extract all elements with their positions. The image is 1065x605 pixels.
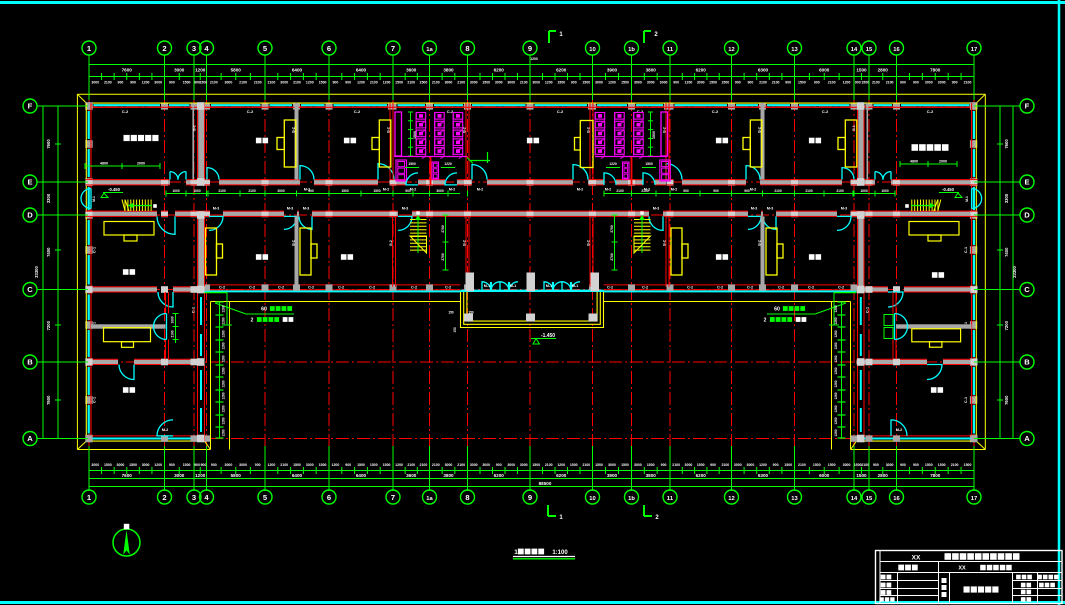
svg-text:5800: 5800 — [231, 473, 242, 478]
svg-text:M-1: M-1 — [965, 196, 969, 202]
svg-text:3: 3 — [192, 493, 196, 502]
svg-text:33300: 33300 — [34, 266, 39, 278]
svg-text:1260: 1260 — [222, 367, 226, 374]
svg-text:C-2: C-2 — [308, 286, 314, 290]
svg-text:900: 900 — [308, 189, 314, 193]
svg-text:M-1: M-1 — [546, 284, 553, 288]
svg-text:3800: 3800 — [443, 473, 454, 478]
svg-text:2100: 2100 — [774, 189, 782, 193]
svg-text:2100: 2100 — [420, 463, 428, 467]
svg-text:1500: 1500 — [183, 463, 191, 467]
svg-text:B-1: B-1 — [852, 125, 856, 131]
svg-text:2100: 2100 — [407, 463, 415, 467]
svg-text:3000: 3000 — [239, 463, 247, 467]
svg-text:D: D — [27, 211, 33, 220]
svg-text:C-1: C-1 — [93, 247, 97, 253]
svg-text:1260: 1260 — [222, 342, 226, 349]
svg-text:88500: 88500 — [539, 481, 552, 486]
svg-text:3000: 3000 — [685, 463, 693, 467]
svg-text:M-3: M-3 — [287, 207, 294, 211]
svg-text:1260: 1260 — [222, 417, 226, 424]
svg-text:3000: 3000 — [660, 81, 668, 85]
svg-text:1260: 1260 — [222, 355, 226, 362]
svg-text:1200: 1200 — [142, 81, 150, 85]
svg-text:M-2: M-2 — [896, 428, 903, 432]
svg-text:14: 14 — [851, 47, 858, 53]
svg-text:2100: 2100 — [457, 81, 465, 85]
svg-text:1500: 1500 — [413, 131, 417, 139]
svg-text:B-2: B-2 — [463, 240, 467, 246]
svg-text:2100: 2100 — [772, 81, 780, 85]
svg-text:1000: 1000 — [171, 316, 175, 323]
svg-text:900: 900 — [735, 81, 741, 85]
svg-text:C-2: C-2 — [249, 286, 255, 290]
svg-text:1500: 1500 — [395, 81, 403, 85]
svg-text:9: 9 — [528, 493, 532, 502]
svg-text:2100: 2100 — [239, 81, 247, 85]
svg-text:A: A — [1024, 434, 1030, 443]
svg-text:12: 12 — [728, 496, 734, 502]
svg-text:3000: 3000 — [938, 81, 946, 85]
svg-text:3000: 3000 — [174, 68, 185, 73]
svg-text:1260: 1260 — [222, 317, 226, 324]
svg-text:1500: 1500 — [557, 81, 565, 85]
svg-text:1200: 1200 — [557, 463, 565, 467]
svg-text:C-2: C-2 — [411, 286, 417, 290]
svg-text:8: 8 — [465, 44, 469, 53]
svg-text:4800: 4800 — [910, 160, 918, 164]
svg-text:3000: 3000 — [634, 463, 642, 467]
svg-text:D: D — [1024, 211, 1030, 220]
svg-text:900: 900 — [345, 81, 351, 85]
svg-text:F: F — [28, 102, 33, 111]
svg-text:7800: 7800 — [930, 68, 941, 73]
svg-text:1200: 1200 — [383, 81, 391, 85]
svg-text:M-3: M-3 — [751, 207, 758, 211]
svg-text:900: 900 — [900, 463, 906, 467]
svg-text:6200: 6200 — [556, 68, 567, 73]
svg-text:1200: 1200 — [395, 463, 403, 467]
svg-text:900: 900 — [744, 189, 750, 193]
svg-text:1200: 1200 — [545, 81, 553, 85]
svg-text:1500: 1500 — [925, 463, 933, 467]
svg-text:900: 900 — [405, 189, 411, 193]
svg-text:900: 900 — [200, 463, 206, 467]
svg-text:7600: 7600 — [1004, 395, 1009, 405]
svg-text:1200: 1200 — [195, 68, 206, 73]
svg-text:33300: 33300 — [1012, 266, 1017, 278]
svg-text:5800: 5800 — [231, 68, 242, 73]
svg-text:B-2: B-2 — [463, 127, 467, 133]
svg-text:3000: 3000 — [470, 81, 478, 85]
svg-text:XX: XX — [912, 555, 921, 562]
svg-text:6400: 6400 — [356, 68, 367, 73]
svg-text:900: 900 — [900, 81, 906, 85]
svg-text:900: 900 — [673, 81, 679, 85]
svg-text:10: 10 — [589, 496, 595, 502]
svg-text:4800: 4800 — [100, 162, 108, 166]
svg-text:1260: 1260 — [834, 367, 838, 374]
svg-text:1260: 1260 — [834, 392, 838, 399]
svg-text:2100: 2100 — [280, 463, 288, 467]
svg-text:B-2: B-2 — [587, 240, 591, 246]
svg-text:1260: 1260 — [222, 405, 226, 412]
svg-text:M-3: M-3 — [767, 207, 774, 211]
svg-text:1260: 1260 — [834, 380, 838, 387]
svg-text:900: 900 — [773, 463, 779, 467]
svg-text:2100: 2100 — [520, 81, 528, 85]
svg-text:1260: 1260 — [834, 429, 838, 436]
svg-text:2: 2 — [654, 32, 658, 38]
svg-text:1500: 1500 — [621, 81, 629, 85]
svg-text:2: 2 — [162, 44, 166, 53]
svg-text:-0.450: -0.450 — [108, 187, 121, 192]
svg-text:4: 4 — [204, 44, 209, 53]
svg-text:2100: 2100 — [268, 81, 276, 85]
svg-text:900: 900 — [571, 81, 577, 85]
svg-text:900: 900 — [814, 81, 820, 85]
svg-text:M-2: M-2 — [449, 188, 456, 192]
svg-text:900: 900 — [118, 81, 124, 85]
svg-text:1220: 1220 — [444, 162, 452, 166]
svg-text:3000: 3000 — [747, 463, 755, 467]
svg-text:C-2: C-2 — [687, 286, 693, 290]
svg-text:C-2: C-2 — [927, 109, 934, 114]
svg-text:2000: 2000 — [939, 160, 947, 164]
svg-text:C-2: C-2 — [557, 109, 564, 114]
svg-text:2100: 2100 — [432, 463, 440, 467]
svg-text:900: 900 — [683, 189, 689, 193]
svg-text:3000: 3000 — [734, 463, 742, 467]
svg-text:1200: 1200 — [268, 463, 276, 467]
svg-text:7: 7 — [391, 44, 395, 53]
svg-text:M-1: M-1 — [572, 284, 579, 288]
svg-text:1a: 1a — [426, 47, 433, 53]
svg-text:12: 12 — [728, 47, 734, 53]
svg-text:C-2: C-2 — [219, 286, 225, 290]
svg-text:1500: 1500 — [652, 131, 656, 139]
svg-text:1:100: 1:100 — [552, 550, 568, 556]
svg-text:7200: 7200 — [46, 320, 51, 330]
svg-text:3000: 3000 — [886, 463, 894, 467]
svg-text:1260: 1260 — [222, 392, 226, 399]
svg-text:1500: 1500 — [319, 463, 327, 467]
svg-text:3000: 3000 — [445, 81, 453, 85]
svg-text:7800: 7800 — [930, 473, 941, 478]
svg-text:XX: XX — [958, 566, 966, 572]
svg-text:M-2: M-2 — [477, 188, 484, 192]
svg-text:2100: 2100 — [545, 463, 553, 467]
svg-text:1500: 1500 — [341, 189, 349, 193]
svg-text:1500: 1500 — [357, 463, 365, 467]
svg-text:3000: 3000 — [595, 81, 603, 85]
svg-text:C: C — [27, 285, 33, 294]
svg-text:E: E — [27, 178, 32, 187]
svg-text:3000: 3000 — [117, 463, 125, 467]
svg-text:2000: 2000 — [137, 162, 145, 166]
svg-text:1500: 1500 — [721, 81, 729, 85]
svg-text:7400: 7400 — [46, 247, 51, 257]
svg-text:1500: 1500 — [482, 81, 490, 85]
svg-text:2800: 2800 — [878, 473, 889, 478]
svg-text:2700: 2700 — [610, 225, 614, 233]
svg-text:1500: 1500 — [420, 81, 428, 85]
svg-text:2100: 2100 — [171, 330, 175, 337]
svg-text:900: 900 — [713, 189, 719, 193]
svg-text:1260: 1260 — [834, 417, 838, 424]
svg-text:C-1: C-1 — [964, 397, 968, 403]
svg-text:M-3: M-3 — [303, 207, 310, 211]
svg-text:1: 1 — [87, 44, 92, 53]
svg-text:2100: 2100 — [951, 463, 959, 467]
svg-text:3000: 3000 — [445, 463, 453, 467]
svg-text:2100: 2100 — [104, 81, 112, 85]
svg-text:B: B — [27, 358, 33, 367]
svg-text:3000: 3000 — [174, 473, 185, 478]
svg-text:A: A — [27, 434, 33, 443]
svg-text:2: 2 — [764, 318, 767, 324]
svg-text:C-2: C-2 — [747, 286, 753, 290]
svg-text:900: 900 — [747, 81, 753, 85]
svg-text:15: 15 — [866, 496, 873, 502]
svg-text:2: 2 — [655, 515, 659, 521]
svg-text:M-1: M-1 — [510, 284, 517, 288]
svg-text:6300: 6300 — [758, 473, 769, 478]
svg-text:1500: 1500 — [370, 463, 378, 467]
svg-text:1200: 1200 — [154, 463, 162, 467]
svg-text:2100: 2100 — [432, 81, 440, 85]
svg-text:1000: 1000 — [881, 189, 889, 193]
svg-text:2100: 2100 — [210, 81, 218, 85]
svg-text:5: 5 — [263, 493, 268, 502]
svg-text:900: 900 — [661, 463, 667, 467]
svg-text:900: 900 — [785, 81, 791, 85]
svg-text:2700: 2700 — [610, 253, 614, 261]
svg-text:7600: 7600 — [46, 139, 51, 149]
svg-text:M-2: M-2 — [671, 188, 678, 192]
svg-text:3000: 3000 — [225, 463, 233, 467]
svg-text:1: 1 — [514, 549, 518, 556]
svg-text:7: 7 — [391, 493, 395, 502]
svg-text:7600: 7600 — [122, 68, 133, 73]
svg-text:8: 8 — [465, 493, 469, 502]
svg-text:C-2: C-2 — [338, 286, 344, 290]
svg-text:1500: 1500 — [784, 463, 792, 467]
svg-text:1500: 1500 — [798, 81, 806, 85]
svg-text:-0.450: -0.450 — [942, 187, 955, 192]
svg-text:3000: 3000 — [436, 189, 444, 193]
svg-text:1500: 1500 — [319, 81, 327, 85]
svg-text:1500: 1500 — [129, 463, 137, 467]
svg-text:C-2: C-2 — [122, 109, 129, 114]
svg-text:C-2: C-2 — [822, 109, 829, 114]
svg-text:B-2: B-2 — [587, 127, 591, 133]
svg-text:900: 900 — [169, 81, 175, 85]
svg-text:C-2: C-2 — [369, 286, 375, 290]
svg-text:2100: 2100 — [407, 81, 415, 85]
svg-text:900: 900 — [130, 81, 136, 85]
svg-text:1500: 1500 — [856, 473, 867, 478]
svg-text:C-2: C-2 — [278, 286, 284, 290]
svg-text:3300: 3300 — [46, 193, 51, 203]
svg-text:7200: 7200 — [1004, 320, 1009, 330]
svg-text:M-3: M-3 — [653, 207, 660, 211]
svg-text:900: 900 — [913, 463, 919, 467]
svg-text:M-3: M-3 — [402, 207, 409, 211]
svg-text:2100: 2100 — [759, 81, 767, 85]
svg-text:3000: 3000 — [495, 81, 503, 85]
svg-text:1200: 1200 — [843, 81, 851, 85]
svg-text:14: 14 — [851, 496, 858, 502]
svg-text:2100: 2100 — [964, 81, 972, 85]
svg-text:F: F — [1025, 102, 1030, 111]
svg-text:C-1: C-1 — [93, 397, 97, 403]
svg-text:2700: 2700 — [441, 225, 445, 233]
svg-text:3000: 3000 — [925, 81, 933, 85]
svg-text:1500: 1500 — [570, 463, 578, 467]
svg-text:C-1: C-1 — [964, 247, 968, 253]
svg-text:3000: 3000 — [843, 463, 851, 467]
svg-text:C-2: C-2 — [717, 286, 723, 290]
svg-text:M-3: M-3 — [841, 207, 848, 211]
svg-text:900: 900 — [332, 81, 338, 85]
svg-text:B-2: B-2 — [758, 127, 762, 133]
svg-text:1500: 1500 — [856, 68, 867, 73]
svg-text:C-2: C-2 — [712, 109, 719, 114]
svg-text:B: B — [1024, 358, 1030, 367]
svg-text:1b: 1b — [628, 496, 635, 502]
svg-text:3800: 3800 — [646, 68, 657, 73]
svg-text:1200: 1200 — [608, 81, 616, 85]
svg-text:6000: 6000 — [819, 473, 830, 478]
svg-text:3000: 3000 — [154, 81, 162, 85]
svg-text:1000: 1000 — [172, 189, 180, 193]
svg-text:1200: 1200 — [195, 473, 206, 478]
svg-text:1260: 1260 — [222, 305, 226, 312]
svg-text:1500: 1500 — [199, 81, 207, 85]
svg-text:6300: 6300 — [758, 68, 769, 73]
svg-text:1200: 1200 — [685, 81, 693, 85]
svg-text:6200: 6200 — [494, 68, 505, 73]
svg-text:1500: 1500 — [828, 463, 836, 467]
svg-text:M-2: M-2 — [750, 188, 757, 192]
svg-text:1500: 1500 — [532, 463, 540, 467]
svg-text:7600: 7600 — [46, 395, 51, 405]
svg-text:1260: 1260 — [834, 317, 838, 324]
svg-text:B-2: B-2 — [663, 127, 667, 133]
svg-text:1500: 1500 — [621, 463, 629, 467]
svg-text:900: 900 — [913, 81, 919, 85]
svg-text:10: 10 — [589, 47, 595, 53]
svg-text:1500: 1500 — [293, 463, 301, 467]
svg-text:4: 4 — [204, 493, 209, 502]
svg-text:B-2: B-2 — [758, 240, 762, 246]
svg-text:1260: 1260 — [834, 355, 838, 362]
svg-text:3300: 3300 — [1004, 193, 1009, 203]
svg-text:900: 900 — [345, 463, 351, 467]
svg-text:1260: 1260 — [834, 330, 838, 337]
svg-text:3000: 3000 — [280, 81, 288, 85]
svg-text:900: 900 — [855, 81, 861, 85]
svg-text:1500: 1500 — [709, 81, 717, 85]
svg-text:1200: 1200 — [759, 463, 767, 467]
svg-text:3000: 3000 — [507, 463, 515, 467]
svg-text:1260: 1260 — [222, 429, 226, 436]
svg-text:60: 60 — [261, 307, 267, 313]
svg-text:2100: 2100 — [582, 463, 590, 467]
svg-text:2100: 2100 — [254, 81, 262, 85]
svg-text:3900: 3900 — [607, 473, 618, 478]
svg-text:2700: 2700 — [441, 253, 445, 261]
svg-text:1500: 1500 — [383, 463, 391, 467]
svg-text:C-2: C-2 — [247, 109, 254, 114]
svg-text:3600: 3600 — [406, 473, 417, 478]
svg-text:3000: 3000 — [697, 81, 705, 85]
svg-text:3800: 3800 — [646, 473, 657, 478]
svg-text:1500: 1500 — [183, 81, 191, 85]
svg-text:2100: 2100 — [805, 189, 813, 193]
svg-text:1260: 1260 — [834, 405, 838, 412]
svg-text:900: 900 — [710, 463, 716, 467]
svg-text:3000: 3000 — [520, 463, 528, 467]
svg-text:6400: 6400 — [356, 473, 367, 478]
svg-text:B-2: B-2 — [292, 240, 296, 246]
svg-text:C-2: C-2 — [778, 286, 784, 290]
svg-text:M-1: M-1 — [92, 196, 96, 202]
svg-text:C-2: C-2 — [445, 286, 451, 290]
svg-text:2100: 2100 — [798, 463, 806, 467]
svg-text:1260: 1260 — [834, 342, 838, 349]
svg-text:6: 6 — [327, 493, 331, 502]
svg-text:C-1: C-1 — [192, 307, 196, 313]
svg-text:M-2: M-2 — [577, 188, 584, 192]
svg-text:900: 900 — [873, 463, 879, 467]
svg-text:3000: 3000 — [482, 463, 490, 467]
svg-text:900: 900 — [194, 463, 200, 467]
svg-text:150: 150 — [453, 327, 457, 333]
svg-text:13: 13 — [791, 47, 798, 53]
svg-text:1500: 1500 — [408, 162, 416, 166]
svg-text:9: 9 — [528, 44, 532, 53]
svg-text:1500: 1500 — [938, 463, 946, 467]
svg-text:16: 16 — [893, 496, 900, 502]
svg-text:900: 900 — [496, 463, 502, 467]
svg-text:3: 3 — [192, 44, 196, 53]
svg-text:3000: 3000 — [507, 81, 515, 85]
svg-text:C-2: C-2 — [808, 286, 814, 290]
svg-text:900: 900 — [211, 463, 217, 467]
svg-text:3000: 3000 — [608, 463, 616, 467]
svg-text:16: 16 — [893, 47, 900, 53]
svg-text:C-2: C-2 — [642, 286, 648, 290]
svg-text:1: 1 — [559, 515, 563, 521]
svg-text:2100: 2100 — [641, 189, 649, 193]
svg-text:2100: 2100 — [672, 463, 680, 467]
svg-text:3000: 3000 — [532, 81, 540, 85]
svg-text:1: 1 — [559, 32, 563, 38]
svg-text:C-2: C-2 — [354, 109, 361, 114]
svg-text:2100: 2100 — [886, 81, 894, 85]
svg-text:1500: 1500 — [697, 463, 705, 467]
svg-text:17: 17 — [971, 496, 977, 502]
svg-text:2100: 2100 — [616, 189, 624, 193]
svg-text:B-2: B-2 — [389, 240, 393, 246]
svg-text:2100: 2100 — [218, 189, 226, 193]
svg-text:B-2: B-2 — [663, 240, 667, 246]
svg-text:6400: 6400 — [292, 473, 303, 478]
svg-text:3000: 3000 — [91, 463, 99, 467]
svg-text:60: 60 — [774, 307, 780, 313]
